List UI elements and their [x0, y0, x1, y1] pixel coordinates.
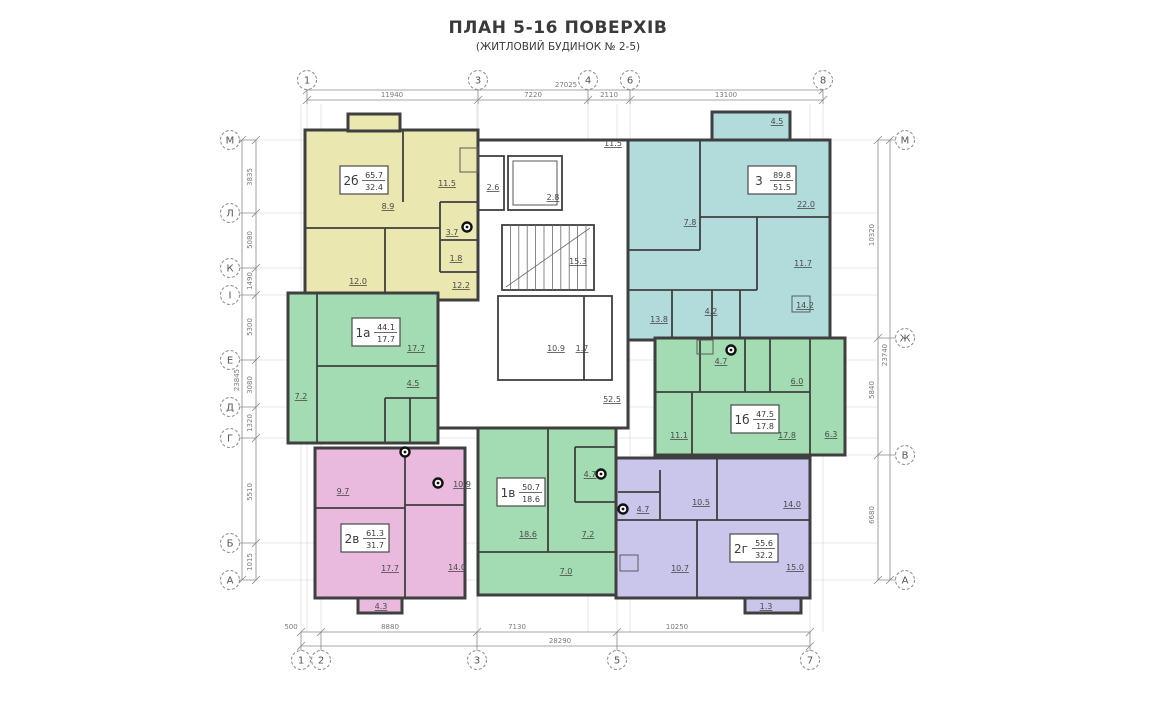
apartment-tag: 2в: [345, 532, 360, 546]
room-area-label: 17.8: [778, 431, 796, 440]
axis-bubble-label: 7: [807, 656, 813, 667]
axis-bubble-3: 3: [468, 651, 487, 670]
room-area-label: 2.6: [487, 183, 500, 192]
apartment-living-area: 32.4: [365, 183, 383, 192]
dim-label: 10250: [666, 623, 688, 631]
apartment-total-area: 65.7: [365, 171, 383, 180]
room-area-label: 10.9: [547, 344, 565, 353]
axis-bubble-4: 4: [579, 71, 598, 90]
apartment-living-area: 17.7: [377, 335, 395, 344]
dim-label: 10320: [868, 224, 876, 246]
axis-bubble-label: І: [229, 291, 232, 302]
apartment-total-area: 44.1: [377, 323, 395, 332]
dim-label: 3835: [246, 168, 254, 186]
room-area-label: 11.5: [438, 179, 456, 188]
room-area-label: 15.3: [569, 257, 587, 266]
apartment-living-area: 18.6: [522, 495, 540, 504]
room-area-label: 4.7: [715, 357, 728, 366]
room-area-label: 11.1: [670, 431, 688, 440]
dim-label: 5300: [246, 318, 254, 336]
axis-bubble-Е: Е: [221, 351, 240, 370]
axis-bubble-label: 8: [820, 76, 826, 87]
floor-plan-svg: ПЛАН 5-16 ПОВЕРХІВ (ЖИТЛОВИЙ БУДИНОК № 2…: [0, 0, 1168, 723]
axis-bubble-В: В: [896, 446, 915, 465]
dim-label: 3080: [246, 376, 254, 394]
axis-bubble-Д: Д: [221, 398, 240, 417]
room-area-label: 10.9: [453, 480, 471, 489]
room-area-label: 17.7: [407, 344, 425, 353]
room-area-label: 2.8: [547, 193, 560, 202]
room-area-label: 6.0: [791, 377, 804, 386]
axis-bubble-label: 6: [627, 76, 633, 87]
axis-bubble-label: А: [902, 576, 909, 587]
room-area-label: 7.8: [684, 218, 697, 227]
axis-bubble-6: 6: [621, 71, 640, 90]
apartment-1v: 1в50.718.64.718.67.27.0: [478, 428, 616, 595]
room-area-label: 13.8: [650, 315, 668, 324]
vent-shaft-icon: [600, 473, 603, 476]
room-area-label: 15.0: [786, 563, 804, 572]
apartment-total-area: 50.7: [522, 483, 540, 492]
apartment-2b-region: [305, 130, 478, 300]
apartment-2g-region: [745, 598, 801, 613]
apartment-total-area: 55.6: [755, 539, 773, 548]
axis-bubble-Б: Б: [221, 534, 240, 553]
apartment-tag: 2г: [734, 542, 748, 556]
room-area-label: 22.0: [797, 200, 815, 209]
axis-bubble-label: Б: [227, 539, 234, 550]
axis-bubble-label: Д: [226, 403, 234, 414]
room-area-label: 1.7: [576, 344, 589, 353]
room-area-label: 4.5: [407, 379, 420, 388]
room-area-label: 4.2: [705, 307, 718, 316]
axis-bubble-label: К: [226, 264, 233, 275]
apartment-2v: 2в61.331.79.710.917.714.04.3: [315, 448, 471, 613]
room-area-label: 10.5: [692, 498, 710, 507]
apartment-1a: 1а44.117.717.74.57.2: [288, 293, 438, 443]
dim-label: 23845: [233, 369, 241, 391]
vent-shaft-icon: [466, 226, 469, 229]
dim-label: 2110: [600, 91, 618, 99]
dim-label: 7220: [524, 91, 542, 99]
dim-label: 1490: [246, 272, 254, 290]
axis-bubble-Л: Л: [221, 204, 240, 223]
axis-bubble-І: І: [221, 286, 240, 305]
axis-bubble-5: 5: [608, 651, 627, 670]
room-area-label: 4.7: [637, 505, 650, 514]
vent-shaft-icon: [437, 482, 440, 485]
axis-bubble-К: К: [221, 259, 240, 278]
apartment-living-area: 51.5: [773, 183, 791, 192]
axis-bubble-label: 2: [318, 656, 324, 667]
room-area-label: 10.7: [671, 564, 689, 573]
room-area-label: 17.7: [381, 564, 399, 573]
axis-bubble-label: Ж: [900, 334, 911, 345]
axis-bubble-М: М: [896, 131, 915, 150]
room-area-label: 14.2: [796, 301, 814, 310]
apartment-2b-region: [348, 114, 400, 131]
vent-shaft-icon: [404, 451, 407, 454]
room-area-label: 4.5: [771, 117, 784, 126]
dim-label: 23740: [881, 344, 889, 366]
dim-label: 5080: [246, 231, 254, 249]
axis-bubble-label: А: [227, 576, 234, 587]
room-area-label: 9.7: [337, 487, 350, 496]
apartment-tag: 1а: [356, 326, 371, 340]
apartment-total-area: 47.5: [756, 410, 774, 419]
apartment-tag: 1в: [501, 486, 516, 500]
apartment-living-area: 17.8: [756, 422, 774, 431]
axis-bubble-А: А: [221, 571, 240, 590]
room-area-label: 7.2: [295, 392, 308, 401]
axis-bubble-3: 3: [469, 71, 488, 90]
axis-bubble-Г: Г: [221, 429, 240, 448]
apartment-1b: 1б47.517.84.76.011.117.86.3: [655, 338, 845, 455]
dim-label: 27025: [555, 81, 577, 89]
axis-bubble-label: Е: [227, 356, 233, 367]
dim-label: 5840: [868, 381, 876, 399]
axis-bubble-label: Л: [226, 209, 234, 220]
room-area-label: 4.3: [375, 602, 388, 611]
apartment-living-area: 31.7: [366, 541, 384, 550]
apartment-3-region: [628, 140, 830, 340]
axis-bubble-Ж: Ж: [896, 329, 915, 348]
room-area-label: 11.5: [604, 139, 622, 148]
apartment-2b: 2б65.732.411.58.93.71.812.012.2: [305, 114, 478, 300]
room-area-label: 1.3: [760, 602, 773, 611]
apartment-tag: 3: [755, 174, 763, 188]
axis-bubble-8: 8: [814, 71, 833, 90]
dim-label: 28290: [549, 637, 571, 645]
apartment-tag: 2б: [343, 174, 358, 188]
dim-label: 1015: [246, 553, 254, 571]
room-area-label: 11.7: [794, 259, 812, 268]
axis-bubble-2: 2: [312, 651, 331, 670]
axis-bubble-label: М: [226, 136, 235, 147]
room-area-label: 1.8: [450, 254, 463, 263]
axis-bubble-label: 5: [614, 656, 620, 667]
room-area-label: 12.2: [452, 281, 470, 290]
room-area-label: 18.6: [519, 530, 537, 539]
axis-bubble-label: В: [902, 451, 909, 462]
axis-bubble-label: 3: [475, 76, 481, 87]
room-area-label: 14.0: [783, 500, 801, 509]
vent-shaft-icon: [622, 508, 625, 511]
axis-bubble-М: М: [221, 131, 240, 150]
apartment-2g-region: [616, 458, 810, 598]
axis-bubble-1: 1: [298, 71, 317, 90]
room-area-label: 14.0: [448, 563, 466, 572]
apartment-living-area: 32.2: [755, 551, 773, 560]
room-area-label: 7.0: [560, 567, 573, 576]
apartment-3: 389.851.54.511.522.07.811.74.213.814.2: [604, 112, 830, 340]
room-area-label: 52.5: [603, 395, 621, 404]
dim-label: 5510: [246, 483, 254, 501]
dim-label: 1320: [246, 414, 254, 432]
room-area-label: 3.7: [446, 228, 459, 237]
room-area-label: 12.0: [349, 277, 367, 286]
apartment-total-area: 89.8: [773, 171, 791, 180]
floor-plan-page: ПЛАН 5-16 ПОВЕРХІВ (ЖИТЛОВИЙ БУДИНОК № 2…: [0, 0, 1168, 723]
dim-label: 500: [284, 623, 297, 631]
apartment-total-area: 61.3: [366, 529, 384, 538]
room-area-label: 4.7: [584, 470, 597, 479]
dim-label: 13100: [715, 91, 737, 99]
apartment-tag: 1б: [734, 413, 749, 427]
vent-shaft-icon: [730, 349, 733, 352]
apartment-2v-region: [315, 448, 465, 598]
axis-bubble-label: 1: [298, 656, 304, 667]
room-area-label: 7.2: [582, 530, 595, 539]
axis-bubble-label: 4: [585, 76, 591, 87]
page-title: ПЛАН 5-16 ПОВЕРХІВ: [448, 18, 667, 38]
dim-label: 11940: [381, 91, 403, 99]
page-subtitle: (ЖИТЛОВИЙ БУДИНОК № 2-5): [476, 40, 640, 53]
dim-label: 6680: [868, 506, 876, 524]
apartment-1v-region: [478, 428, 616, 595]
axis-bubble-1: 1: [292, 651, 311, 670]
dim-label: 8880: [381, 623, 399, 631]
axis-bubble-label: М: [901, 136, 910, 147]
apartment-1a-region: [288, 293, 438, 443]
room-area-label: 8.9: [382, 202, 395, 211]
axis-bubble-label: 1: [304, 76, 310, 87]
apartment-2g: 2г55.632.24.710.514.010.715.01.3: [616, 458, 810, 613]
axis-bubble-label: 3: [474, 656, 480, 667]
dim-label: 7130: [508, 623, 526, 631]
room-area-label: 6.3: [825, 430, 838, 439]
axis-bubble-label: Г: [227, 434, 233, 445]
axis-bubble-7: 7: [801, 651, 820, 670]
axis-bubble-А: А: [896, 571, 915, 590]
